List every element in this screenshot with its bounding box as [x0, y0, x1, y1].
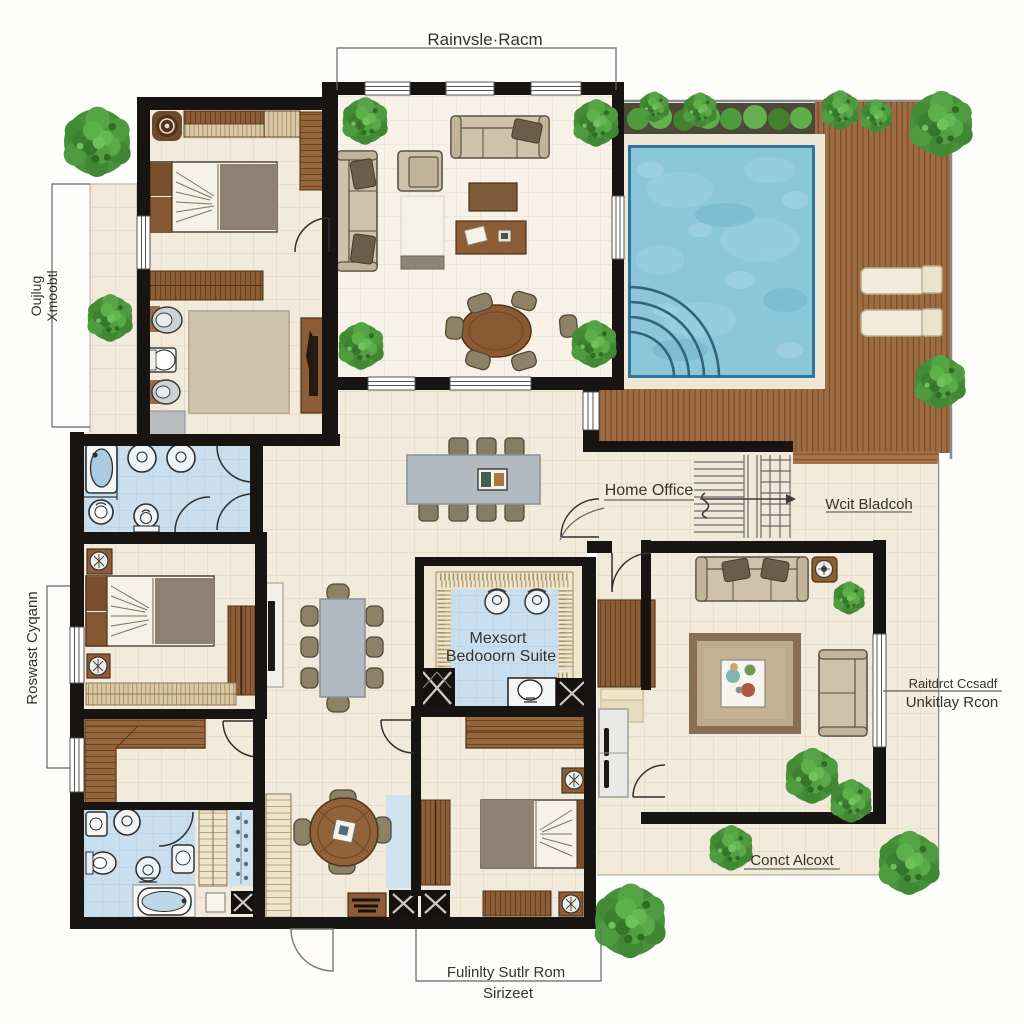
svg-text:Raitdrct Ccsadf: Raitdrct Ccsadf	[909, 676, 998, 691]
svg-text:Bedooorn Suite: Bedooorn Suite	[446, 648, 556, 665]
svg-text:Oujlug: Oujlug	[28, 276, 44, 316]
svg-text:Fulinlty Sutlr Rom: Fulinlty Sutlr Rom	[447, 964, 565, 981]
svg-text:Conct Alcoxt: Conct Alcoxt	[750, 852, 834, 869]
svg-text:Rainvsle·Racm: Rainvsle·Racm	[427, 30, 542, 49]
svg-text:Roswast Cyqann: Roswast Cyqann	[24, 591, 41, 704]
svg-text:Xmoobtl: Xmoobtl	[44, 270, 60, 321]
svg-text:Sirizeet: Sirizeet	[483, 985, 534, 1002]
svg-text:Wcit Bladcoh: Wcit Bladcoh	[825, 496, 913, 513]
svg-text:Mexsort: Mexsort	[470, 630, 527, 647]
svg-text:Home Office: Home Office	[605, 482, 694, 499]
svg-text:Unkitlay Rcon: Unkitlay Rcon	[906, 694, 999, 711]
